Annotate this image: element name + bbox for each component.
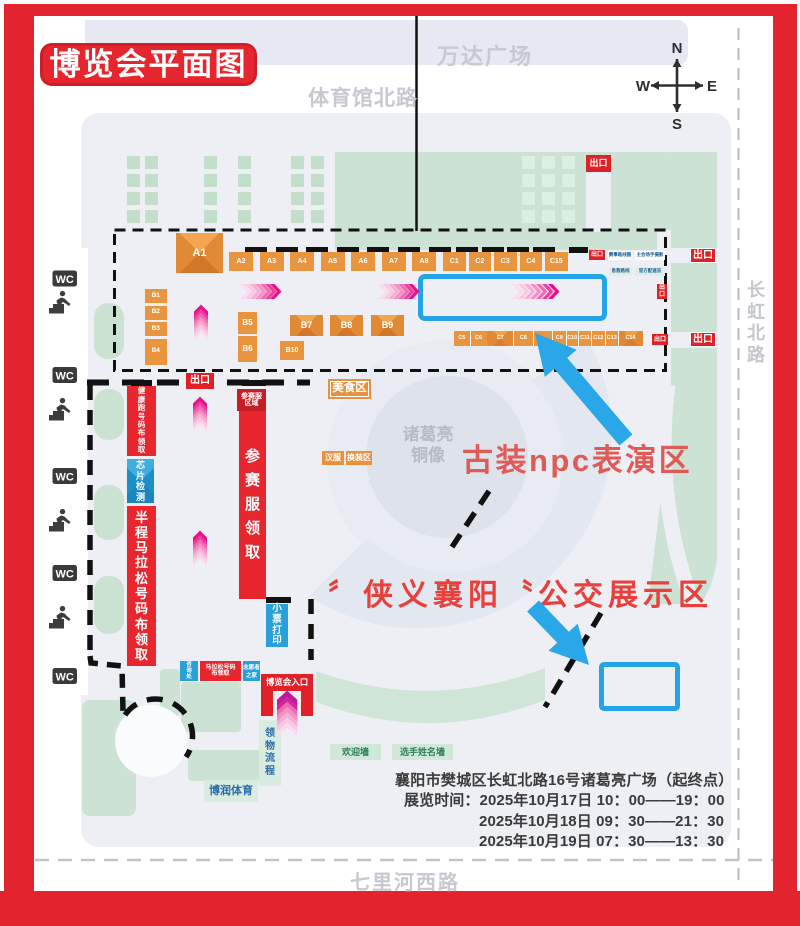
svg-text:WC: WC bbox=[56, 274, 74, 286]
